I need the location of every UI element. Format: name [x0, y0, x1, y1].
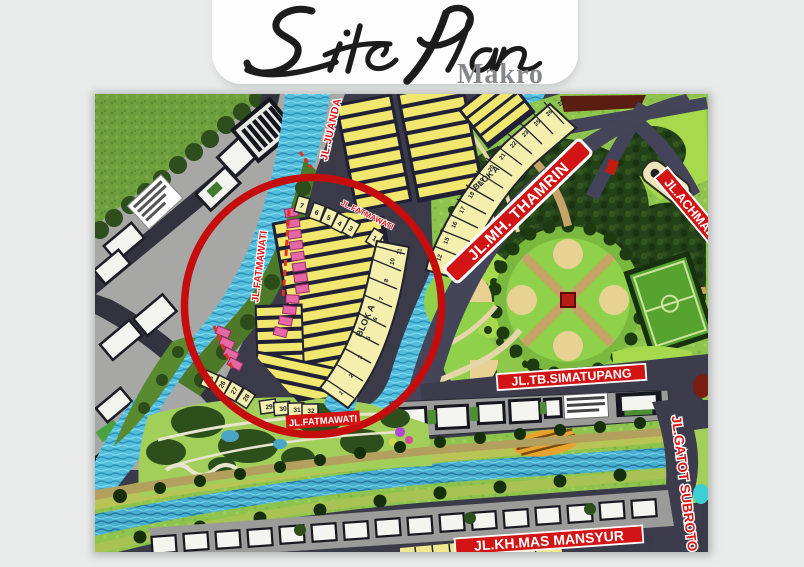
svg-text:31: 31: [293, 407, 301, 414]
svg-text:29: 29: [265, 403, 274, 411]
svg-text:Makro: Makro: [457, 59, 544, 90]
svg-text:30: 30: [279, 406, 287, 414]
